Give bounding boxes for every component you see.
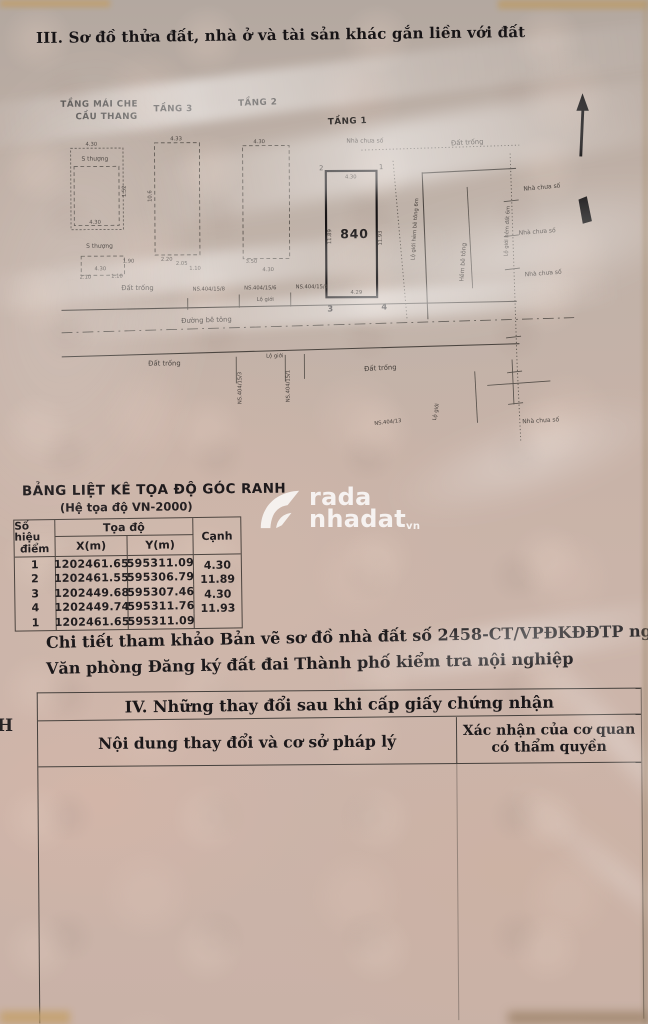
land-label: Đất trống	[451, 138, 484, 148]
edge-value: 11.93	[194, 601, 241, 615]
col-header-coords: Tọa độ	[55, 518, 193, 537]
dim-label: 2.20	[161, 257, 173, 263]
road-name-label: Đường bê tông	[181, 315, 232, 325]
road-limit-label: Lộ giới	[431, 403, 441, 421]
section4-header-row: Nội dung thay đổi và cơ sở pháp lý Xác n…	[38, 716, 641, 768]
house-label: Nhà chưa số	[525, 269, 563, 279]
floor-label-2: TẦNG 2	[238, 94, 278, 109]
reference-note-line2: Văn phòng Đăng ký đất đai Thành phố kiểm…	[46, 649, 574, 678]
floor3-outline	[155, 143, 200, 255]
parcel-id-label: NS.404/15/1	[285, 370, 291, 402]
road-edge-line	[61, 301, 516, 310]
alley-limit-label: Lộ giới hẻm đất 6m	[502, 206, 511, 257]
cell-point: 3	[15, 586, 56, 601]
map-mark	[578, 196, 591, 223]
edge-value: 4.30	[194, 558, 241, 572]
alley-line	[422, 172, 428, 319]
parcel-id-label: NS.404/13	[374, 418, 402, 427]
dim-label: 4.33	[170, 136, 182, 142]
dim-label: 1.10	[189, 266, 201, 272]
alley-line	[422, 168, 516, 173]
dim-label: 4.30	[86, 142, 98, 148]
watermark-logo-icon	[256, 486, 302, 532]
photo-edge	[0, 0, 110, 7]
col-header-x: X(m)	[55, 536, 127, 557]
land-label: Đất trống	[121, 284, 154, 292]
section4-table: IV. Những thay đổi sau khi cấp giấy chứn…	[37, 688, 645, 1024]
setback-dotted-line	[510, 153, 521, 441]
parcel-number: 840	[340, 226, 369, 241]
edge-value: 4.30	[194, 587, 241, 601]
dim-label: 1.52	[122, 185, 128, 197]
cell-point: 1	[15, 557, 56, 572]
cell-y: 595307.46	[128, 584, 194, 599]
cell-x: 1202449.68	[56, 585, 128, 601]
dim-label: 11.93	[378, 231, 384, 246]
cell-y: 595311.09	[129, 613, 195, 628]
corner-label-1: 1	[379, 163, 383, 171]
cell-y: 595311.09	[128, 555, 194, 570]
terrace-label: S thượng	[81, 156, 108, 163]
house-label: Nhà chưa số	[523, 182, 561, 192]
dim-label: 4.30	[262, 267, 274, 273]
floor-label-3: TẦNG 3	[153, 101, 192, 114]
cell-y: 595311.76	[128, 599, 194, 614]
col-header-y: Y(m)	[127, 535, 193, 556]
dim-label: 2.10	[80, 275, 92, 281]
dim-label: 3.50	[246, 259, 258, 265]
land-label: Đất trống	[148, 359, 181, 367]
cell-y: 595306.79	[128, 570, 194, 585]
house-label: Nhà chưa số	[346, 138, 383, 145]
corner-label-2: 2	[319, 164, 323, 172]
coord-table-subtitle: (Hệ tọa độ VN-2000)	[60, 499, 193, 514]
dim-label: 2.05	[176, 261, 188, 267]
section4-col-content: Nội dung thay đổi và cơ sở pháp lý	[38, 717, 456, 766]
cell-x: 1202461.65	[57, 614, 129, 630]
house-label: Nhà chưa số	[518, 227, 556, 237]
floor-label-1: TẦNG 1	[328, 113, 368, 128]
road-centerline	[62, 318, 575, 333]
section4-column-divider	[456, 762, 459, 1020]
site-plan-drawing: TẦNG MÁI CHE CẦU THANG TẦNG 3 TẦNG 2 TẦN…	[0, 86, 648, 521]
alley-name-label: Hẻm bê tông	[458, 242, 468, 281]
coord-table-title: BẢNG LIỆT KÊ TỌA ĐỘ GÓC RANH	[22, 481, 286, 500]
north-arrow	[581, 107, 584, 157]
watermark: rada nhadatvn	[256, 486, 420, 532]
edge-value: 11.89	[194, 572, 241, 586]
cell-x: 1202461.55	[56, 571, 128, 587]
corner-label-4: 4	[381, 301, 387, 311]
margin-cut-text: H	[0, 716, 13, 736]
road-edge-line	[62, 344, 520, 357]
land-label: Đất trống	[364, 363, 397, 373]
road-limit-label: Lộ giới	[266, 352, 283, 359]
setback-dotted-line	[393, 161, 407, 321]
setback-dotted-line	[361, 145, 519, 150]
land-certificate-photo: III. Sơ đồ thửa đất, nhà ở và tài sản kh…	[0, 0, 648, 1024]
floor-label-roof1: TẦNG MÁI CHE	[60, 96, 138, 109]
dim-label: 1.10	[111, 274, 123, 280]
edge-lengths: 4.30 11.89 4.30 11.93	[194, 554, 242, 627]
alley-line	[475, 371, 478, 423]
dim-label: 4.30	[89, 220, 101, 226]
alley-line	[467, 187, 473, 288]
col-header-point: Số hiệu điểm	[14, 520, 56, 558]
watermark-text: rada nhadatvn	[309, 486, 420, 531]
dim-label: 4.30	[253, 139, 265, 145]
dim-label: 4.29	[351, 290, 363, 296]
dim-label: 4.30	[345, 174, 357, 180]
dim-label: 10.6	[147, 190, 153, 202]
parcel-id-label: NS.404/15/3	[237, 372, 243, 404]
cell-x: 1202461.65	[56, 556, 128, 572]
section3-title: III. Sơ đồ thửa đất, nhà ở và tài sản kh…	[36, 23, 526, 47]
cell-point: 1	[16, 615, 57, 630]
house-label: Nhà chưa số	[522, 416, 560, 425]
photo-edge	[498, 0, 648, 9]
north-arrow-head	[576, 93, 589, 111]
cell-point: 2	[15, 572, 56, 587]
terrace-label: S thượng	[86, 243, 113, 250]
alley-limit-label: Lộ giới hẻm bê tông 6m	[409, 198, 420, 261]
floor-label-roof2: CẦU THANG	[75, 109, 137, 122]
coord-table: Số hiệu điểm Tọa độ Cạnh X(m) Y(m) 1 120…	[13, 516, 243, 631]
section4-col-confirm: Xác nhận của cơ quan có thẩm quyền	[456, 716, 641, 763]
dim-label: 4.30	[95, 266, 107, 272]
road-limit-label: Lộ giới	[257, 296, 274, 303]
floor2-outline	[243, 146, 290, 259]
dim-label: 11.89	[327, 229, 333, 244]
parcel-id-label: NS.404/15/8	[193, 286, 225, 292]
cell-point: 4	[15, 601, 56, 616]
parcel-id-label: NS.404/15/6	[244, 285, 276, 291]
roof-inner-outline	[74, 166, 119, 225]
dim-label: 1.90	[123, 259, 135, 265]
cell-x: 1202449.74	[56, 599, 128, 615]
col-header-edge: Cạnh	[193, 517, 241, 555]
parcel-id-label: NS.404/15/4	[296, 284, 329, 290]
